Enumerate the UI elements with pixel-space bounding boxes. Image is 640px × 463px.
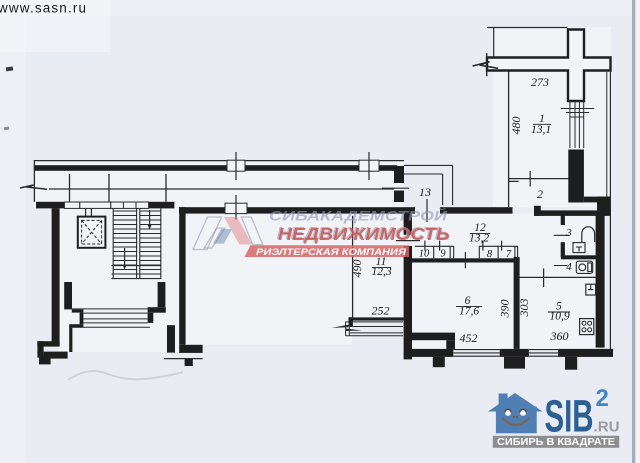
svg-text:www.sasn.ru: www.sasn.ru — [0, 1, 86, 16]
svg-text:2: 2 — [537, 187, 543, 201]
svg-text:7: 7 — [506, 249, 512, 260]
svg-text:273: 273 — [531, 75, 549, 89]
svg-text:SIB: SIB — [545, 391, 594, 442]
svg-text:13,1: 13,1 — [531, 124, 551, 136]
svg-text:2: 2 — [596, 385, 609, 412]
svg-text:8: 8 — [487, 249, 493, 260]
svg-text:490: 490 — [350, 260, 364, 278]
svg-text:9: 9 — [440, 249, 446, 260]
svg-text:НЕДВИЖИМОСТЬ: НЕДВИЖИМОСТЬ — [278, 224, 450, 244]
svg-text:480: 480 — [509, 117, 523, 135]
svg-text:13,2: 13,2 — [469, 233, 489, 245]
svg-text:10: 10 — [419, 249, 430, 260]
svg-text:3: 3 — [565, 227, 572, 239]
svg-text:4: 4 — [566, 261, 572, 273]
svg-text:390: 390 — [498, 300, 512, 319]
svg-text:13: 13 — [419, 185, 431, 199]
svg-text:РИЭЛТЕРСКАЯ КОМПАНИЯ: РИЭЛТЕРСКАЯ КОМПАНИЯ — [256, 247, 406, 257]
svg-text:17,6: 17,6 — [459, 306, 479, 318]
svg-text:452: 452 — [460, 331, 478, 345]
svg-text:360: 360 — [550, 329, 569, 343]
svg-text:.RU: .RU — [594, 420, 620, 436]
svg-text:СИБАКАДЕМСТРОЙ: СИБАКАДЕМСТРОЙ — [269, 207, 448, 224]
svg-text:303: 303 — [517, 299, 531, 318]
svg-text:СИБИРЬ В КВАДРАТЕ: СИБИРЬ В КВАДРАТЕ — [497, 437, 615, 448]
svg-text:252: 252 — [372, 304, 390, 318]
